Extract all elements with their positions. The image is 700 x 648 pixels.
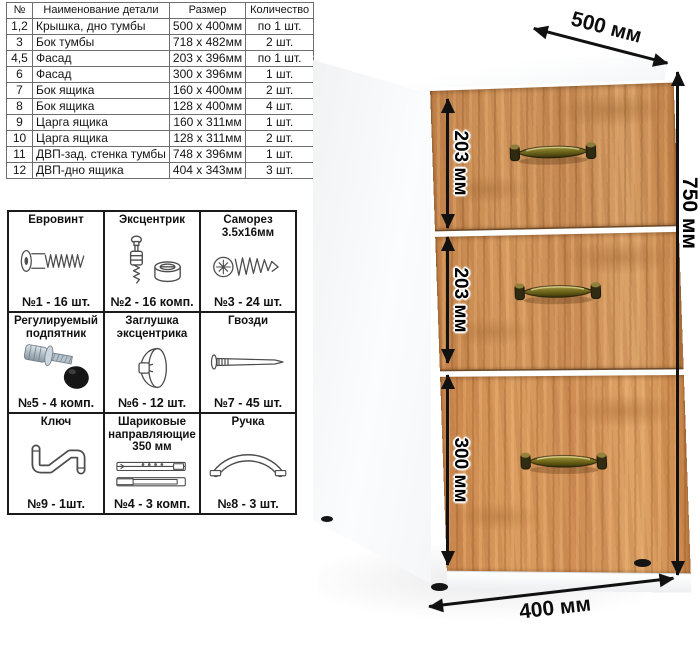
cabinet-side-face bbox=[312, 56, 431, 618]
dim-height-label: 750 мм bbox=[677, 177, 700, 249]
cabinet-foot bbox=[431, 583, 448, 591]
assembly-sheet: № Наименование детали Размер Количество … bbox=[0, 0, 700, 648]
cabinet-foot bbox=[634, 559, 651, 567]
dim-drawer1-label: 203 мм bbox=[449, 130, 471, 195]
dim-height-arrow bbox=[676, 72, 679, 575]
drawer-handle-icon bbox=[517, 449, 611, 475]
cabinet-foot bbox=[321, 516, 333, 522]
drawer-2 bbox=[435, 232, 683, 370]
drawer-handle-icon bbox=[511, 278, 605, 306]
cabinet-photo: 500 мм 750 мм 203 мм 203 мм 300 мм 400 м… bbox=[0, 0, 700, 648]
dim-drawer3-label: 300 мм bbox=[449, 437, 471, 502]
dim-drawer2-label: 203 мм bbox=[449, 267, 471, 332]
drawer-3 bbox=[440, 375, 691, 573]
drawer-handle-icon bbox=[506, 138, 600, 167]
